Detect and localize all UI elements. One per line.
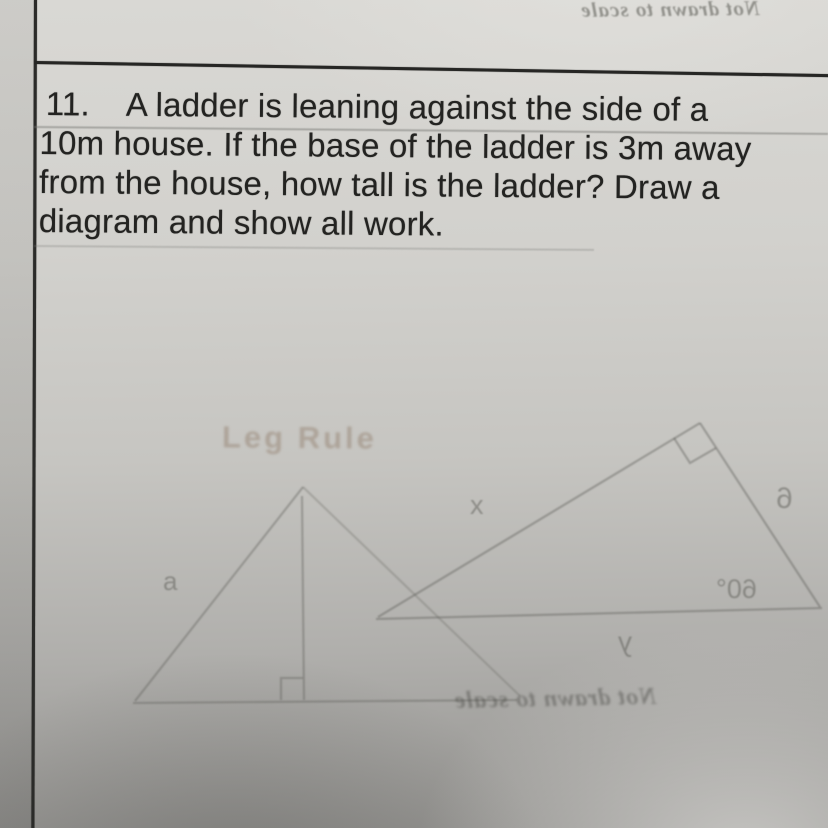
right-triangle-hypotenuse: [378, 423, 700, 617]
bleedthrough-label-60deg: 60°: [716, 574, 757, 605]
bleedthrough-label-6: 6: [776, 482, 793, 516]
right-triangle-base: [376, 608, 822, 619]
bleedthrough-label-y: y: [618, 626, 632, 658]
bleedthrough-diagram-title: Leg Rule: [222, 419, 377, 456]
bleedthrough-label-x: x: [470, 490, 484, 521]
bleedthrough-label-a: a: [163, 566, 177, 597]
left-triangle-left-side: [135, 487, 303, 701]
left-triangle-diagram: [133, 487, 520, 703]
right-triangle-right-angle-mark: [674, 438, 716, 463]
left-triangle-right-angle-mark: [281, 678, 303, 700]
left-triangle-right-side: [303, 487, 520, 696]
left-triangle-altitude: [302, 496, 304, 700]
worksheet-photo: Not drawn to scale 11.A ladder is leanin…: [0, 0, 828, 828]
